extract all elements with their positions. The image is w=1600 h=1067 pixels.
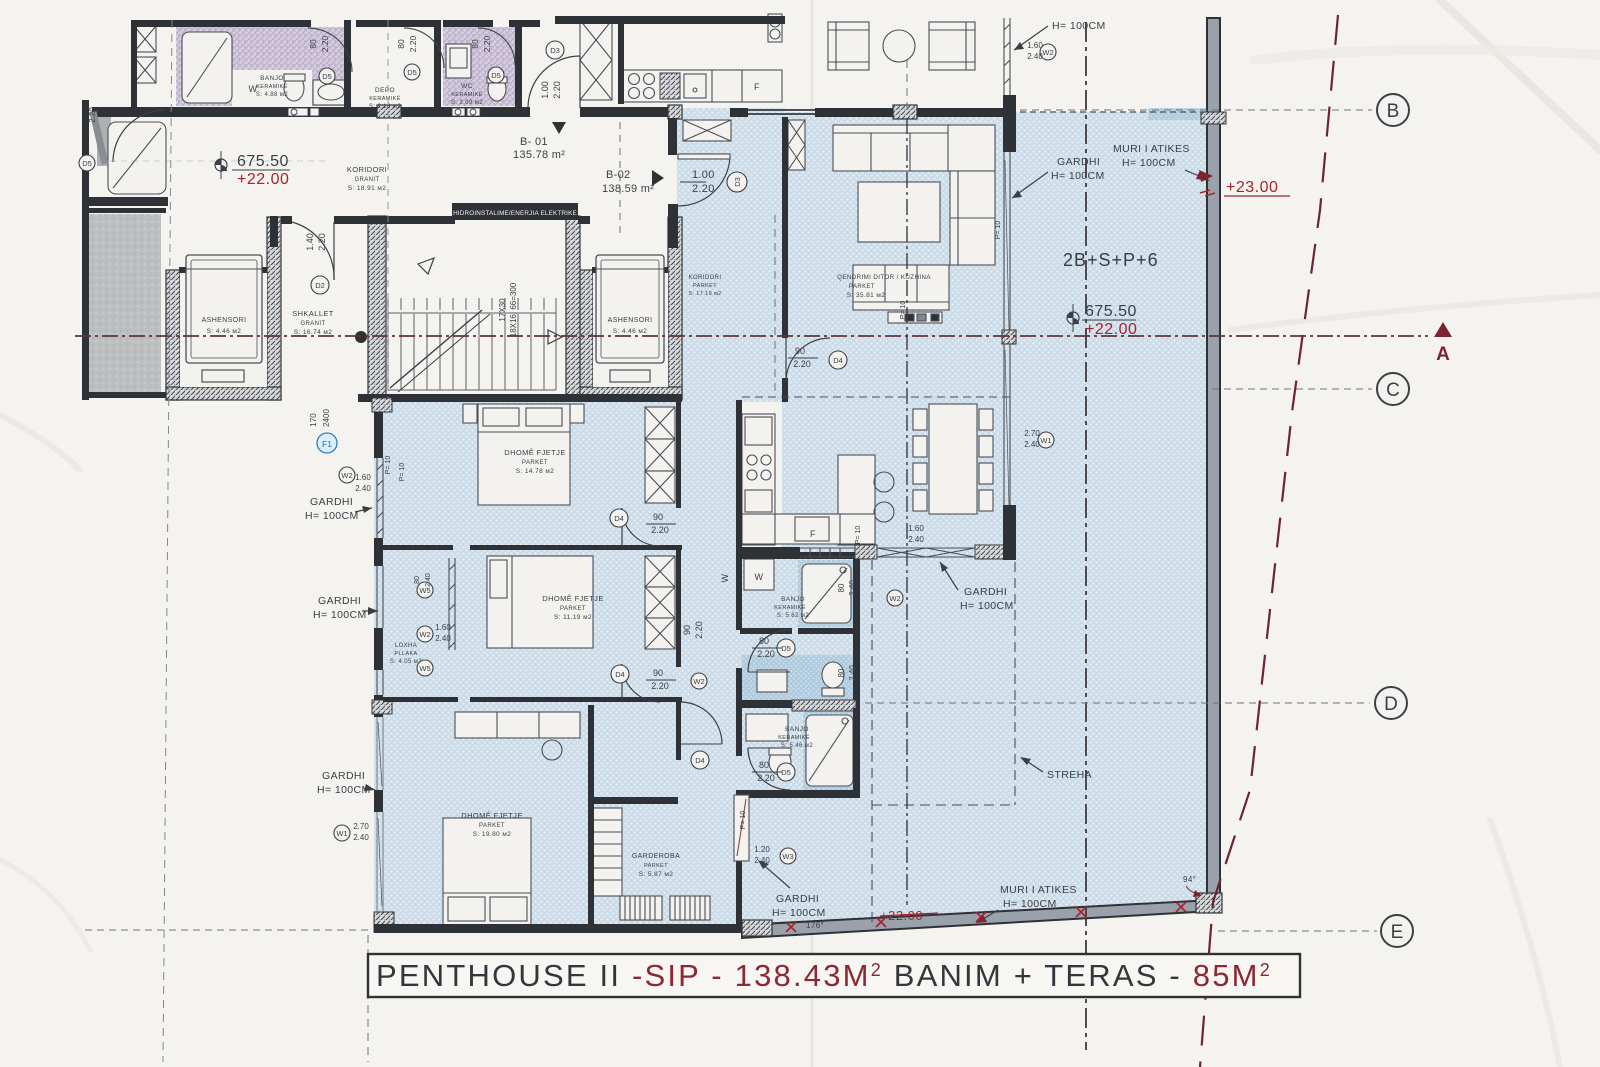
svg-text:W3: W3 xyxy=(782,852,793,861)
svg-text:W1: W1 xyxy=(1040,436,1051,445)
svg-text:S: 14.78 м2: S: 14.78 м2 xyxy=(516,468,555,475)
svg-text:GARDHI: GARDHI xyxy=(964,586,1007,598)
svg-text:C: C xyxy=(1386,380,1400,401)
svg-text:S: 19.80 м2: S: 19.80 м2 xyxy=(473,831,512,838)
svg-text:GARDHI: GARDHI xyxy=(776,893,819,905)
svg-text:80: 80 xyxy=(759,636,769,646)
svg-text:2.40: 2.40 xyxy=(908,535,924,544)
svg-text:90: 90 xyxy=(795,346,805,356)
svg-text:B-02: B-02 xyxy=(606,169,630,181)
svg-text:S: 5.46 м2: S: 5.46 м2 xyxy=(781,743,813,749)
svg-text:P= 10: P= 10 xyxy=(995,221,1002,240)
svg-text:W: W xyxy=(249,84,258,94)
svg-text:2.20: 2.20 xyxy=(651,525,669,535)
svg-text:H= 100CM: H= 100CM xyxy=(772,907,826,919)
svg-text:F: F xyxy=(754,82,760,92)
svg-text:PARKET: PARKET xyxy=(522,460,548,466)
svg-text:D4: D4 xyxy=(615,670,625,679)
svg-text:S: 17.19 м2: S: 17.19 м2 xyxy=(688,291,721,297)
svg-text:80: 80 xyxy=(308,39,318,49)
svg-text:1.60: 1.60 xyxy=(435,623,451,632)
svg-text:GARDHI: GARDHI xyxy=(322,770,365,782)
svg-text:H= 100CM: H= 100CM xyxy=(1052,20,1106,32)
svg-text:P= 10: P= 10 xyxy=(385,456,392,475)
svg-text:WC: WC xyxy=(461,83,473,90)
svg-text:S: 16.74 м2: S: 16.74 м2 xyxy=(294,329,333,336)
svg-text:BANJO: BANJO xyxy=(260,75,284,82)
svg-text:KERAMIKË: KERAMIKË xyxy=(451,91,483,98)
svg-text:W: W xyxy=(755,572,764,582)
svg-text:KERAMIKË: KERAMIKË xyxy=(256,83,288,90)
svg-text:PARKET: PARKET xyxy=(644,863,668,869)
svg-text:S: 35.81 м2: S: 35.81 м2 xyxy=(847,292,886,299)
svg-text:2.20: 2.20 xyxy=(694,621,704,639)
svg-text:PARKET: PARKET xyxy=(693,283,717,289)
svg-text:2.20: 2.20 xyxy=(692,183,715,195)
svg-text:80: 80 xyxy=(837,583,846,592)
svg-text:PARKET: PARKET xyxy=(479,823,505,829)
svg-text:GRANIT: GRANIT xyxy=(300,321,325,327)
svg-text:W2: W2 xyxy=(419,630,430,639)
svg-text:2.20: 2.20 xyxy=(552,81,562,99)
svg-text:W5: W5 xyxy=(419,664,430,673)
svg-text:PARKET: PARKET xyxy=(849,284,875,290)
svg-text:H= 100CM: H= 100CM xyxy=(1003,898,1057,910)
svg-text:176°: 176° xyxy=(806,921,824,930)
svg-text:F: F xyxy=(810,529,816,539)
svg-text:ASHENSORI: ASHENSORI xyxy=(202,317,247,324)
svg-text:F1: F1 xyxy=(322,439,332,449)
svg-text:D5: D5 xyxy=(781,644,791,653)
svg-text:80: 80 xyxy=(414,576,421,584)
svg-text:138.59 m²: 138.59 m² xyxy=(602,183,654,195)
svg-text:1.00: 1.00 xyxy=(692,169,715,181)
svg-text:90: 90 xyxy=(682,625,692,635)
svg-text:2.20: 2.20 xyxy=(320,35,330,52)
svg-text:H= 100CM: H= 100CM xyxy=(1051,170,1105,182)
svg-text:S: 5.62 м2: S: 5.62 м2 xyxy=(777,613,809,619)
svg-text:H= 100CM: H= 100CM xyxy=(305,510,359,522)
svg-text:D4: D4 xyxy=(614,514,624,523)
svg-text:S: 4.46 м2: S: 4.46 м2 xyxy=(613,328,648,335)
svg-text:KORIDORI: KORIDORI xyxy=(347,165,387,174)
svg-text:D5: D5 xyxy=(491,71,501,80)
svg-text:2.20: 2.20 xyxy=(793,359,811,369)
svg-text:DEPO: DEPO xyxy=(375,87,395,94)
svg-text:MURI I ATIKES: MURI I ATIKES xyxy=(1113,143,1190,155)
svg-text:D5: D5 xyxy=(781,768,791,777)
svg-text:80: 80 xyxy=(837,668,846,677)
svg-text:W: W xyxy=(720,573,730,582)
svg-text:+22.00: +22.00 xyxy=(1085,321,1137,338)
svg-text:2.40: 2.40 xyxy=(848,580,857,596)
svg-text:GARDHI: GARDHI xyxy=(1057,156,1100,168)
svg-text:P= 10: P= 10 xyxy=(740,811,747,830)
svg-text:2400: 2400 xyxy=(322,409,331,427)
svg-text:2.70: 2.70 xyxy=(1024,429,1040,438)
svg-text:2.20: 2.20 xyxy=(757,773,775,783)
svg-text:2.20: 2.20 xyxy=(317,233,327,251)
svg-text:BANJO: BANJO xyxy=(785,726,809,733)
svg-text:2.20: 2.20 xyxy=(408,35,418,52)
svg-text:PLLAKA: PLLAKA xyxy=(394,651,417,657)
svg-text:2.20: 2.20 xyxy=(482,35,492,52)
svg-text:90: 90 xyxy=(653,668,663,678)
svg-text:P= 10: P= 10 xyxy=(399,463,406,482)
svg-text:DHOMÊ FJETJE: DHOMÊ FJETJE xyxy=(461,811,522,820)
svg-text:SHKALLET: SHKALLET xyxy=(292,309,334,318)
svg-text:S: 11.19 м2: S: 11.19 м2 xyxy=(554,614,592,621)
svg-text:80: 80 xyxy=(470,39,480,49)
svg-text:+22.00: +22.00 xyxy=(237,171,289,188)
svg-text:2.40: 2.40 xyxy=(435,634,451,643)
svg-text:135.78 m²: 135.78 m² xyxy=(513,149,565,161)
svg-text:2.40: 2.40 xyxy=(1024,440,1040,449)
svg-text:KERAMIKË: KERAMIKË xyxy=(369,95,401,102)
svg-text:+23.00: +23.00 xyxy=(1226,179,1278,196)
svg-text:LOXHA: LOXHA xyxy=(395,643,417,649)
svg-text:W2: W2 xyxy=(693,677,704,686)
svg-text:2.20: 2.20 xyxy=(651,681,669,691)
svg-text:18X16, 66=300: 18X16, 66=300 xyxy=(509,282,518,337)
svg-text:H= 100CM: H= 100CM xyxy=(960,600,1014,612)
svg-text:MURI I ATIKES: MURI I ATIKES xyxy=(1000,884,1077,896)
svg-text:QENDRIMI DITOR / KUZHINA: QENDRIMI DITOR / KUZHINA xyxy=(837,274,931,281)
svg-text:1.00: 1.00 xyxy=(540,81,550,99)
svg-text:H= 100CM: H= 100CM xyxy=(313,609,367,621)
svg-text:KORIDORI: KORIDORI xyxy=(689,275,722,281)
svg-text:P= 10: P= 10 xyxy=(900,301,907,320)
svg-text:B: B xyxy=(1387,101,1400,122)
svg-text:2.70: 2.70 xyxy=(353,822,369,831)
svg-text:1.60: 1.60 xyxy=(908,524,924,533)
svg-text:2.40: 2.40 xyxy=(754,856,770,865)
svg-text:KERAMIKË: KERAMIKË xyxy=(774,604,806,611)
svg-text:W2: W2 xyxy=(1042,48,1053,57)
svg-text:170: 170 xyxy=(309,413,318,427)
svg-text:KERAMIKË: KERAMIKË xyxy=(778,734,810,741)
svg-text:1.20: 1.20 xyxy=(754,845,770,854)
svg-text:H= 100CM: H= 100CM xyxy=(317,784,371,796)
svg-text:2.40: 2.40 xyxy=(848,665,857,681)
svg-text:BANJO: BANJO xyxy=(781,596,805,603)
svg-text:S: 4.46 м2: S: 4.46 м2 xyxy=(207,328,242,335)
svg-text:1.60: 1.60 xyxy=(1027,41,1043,50)
svg-text:2.40: 2.40 xyxy=(1027,52,1043,61)
svg-text:80: 80 xyxy=(759,760,769,770)
svg-text:2.20: 2.20 xyxy=(757,649,775,659)
svg-text:2.20: 2.20 xyxy=(88,107,97,123)
svg-text:W2: W2 xyxy=(341,471,352,480)
svg-text:675.50: 675.50 xyxy=(1085,303,1137,320)
svg-text:HIDROINSTALIME/ENERJIA ELEKTRI: HIDROINSTALIME/ENERJIA ELEKTRIKE xyxy=(453,210,577,217)
svg-text:P= 10: P= 10 xyxy=(855,526,862,545)
svg-text:2.40: 2.40 xyxy=(353,833,369,842)
svg-text:2.40: 2.40 xyxy=(355,484,371,493)
svg-text:1.40: 1.40 xyxy=(305,233,315,251)
svg-text:94°: 94° xyxy=(1183,875,1196,884)
svg-text:GARDHI: GARDHI xyxy=(318,595,361,607)
svg-text:A: A xyxy=(1436,344,1450,365)
svg-text:PENTHOUSE II -SIP - 138.43M2 B: PENTHOUSE II -SIP - 138.43M2 BANIM + TER… xyxy=(376,958,1272,993)
svg-text:D2: D2 xyxy=(315,281,325,290)
svg-text:B- 01: B- 01 xyxy=(520,136,548,148)
svg-text:17X30: 17X30 xyxy=(498,298,507,322)
svg-text:2B+S+P+6: 2B+S+P+6 xyxy=(1063,250,1159,270)
svg-text:D: D xyxy=(1384,694,1398,715)
svg-text:S: 4.88 м2: S: 4.88 м2 xyxy=(256,92,288,98)
svg-text:D4: D4 xyxy=(695,756,705,765)
svg-text:GRANIT: GRANIT xyxy=(354,177,379,183)
svg-text:D3: D3 xyxy=(733,177,742,187)
svg-text:GARDHI: GARDHI xyxy=(310,496,353,508)
svg-text:GARDEROBA: GARDEROBA xyxy=(632,853,680,860)
svg-text:E: E xyxy=(1391,922,1404,943)
svg-text:D3: D3 xyxy=(550,46,560,55)
svg-text:PARKET: PARKET xyxy=(560,606,586,612)
svg-text:D5: D5 xyxy=(82,159,92,168)
svg-text:S: 2.16 м2: S: 2.16 м2 xyxy=(369,104,401,110)
svg-text:675.50: 675.50 xyxy=(237,153,289,170)
svg-text:DHOMÊ FJETJE: DHOMÊ FJETJE xyxy=(504,448,565,457)
svg-text:D5: D5 xyxy=(322,72,332,81)
svg-text:STREHA: STREHA xyxy=(1047,769,1092,781)
svg-text:90: 90 xyxy=(653,512,663,522)
svg-text:ASHENSORI: ASHENSORI xyxy=(608,317,653,324)
svg-text:+22.00: +22.00 xyxy=(880,908,923,923)
svg-text:H= 100CM: H= 100CM xyxy=(1122,157,1176,169)
svg-text:W1: W1 xyxy=(336,829,347,838)
svg-text:S: 18.91 м2: S: 18.91 м2 xyxy=(348,185,387,192)
svg-text:2.40: 2.40 xyxy=(425,573,432,587)
svg-text:80: 80 xyxy=(396,39,406,49)
svg-text:1.60: 1.60 xyxy=(355,473,371,482)
svg-text:S: 2.09 м2: S: 2.09 м2 xyxy=(451,100,483,106)
svg-text:D5: D5 xyxy=(407,68,417,77)
svg-text:D4: D4 xyxy=(833,356,843,365)
svg-text:S: 5.87 м2: S: 5.87 м2 xyxy=(639,871,674,878)
svg-text:W2: W2 xyxy=(889,594,900,603)
svg-text:DHOMÊ FJETJE: DHOMÊ FJETJE xyxy=(542,594,603,603)
